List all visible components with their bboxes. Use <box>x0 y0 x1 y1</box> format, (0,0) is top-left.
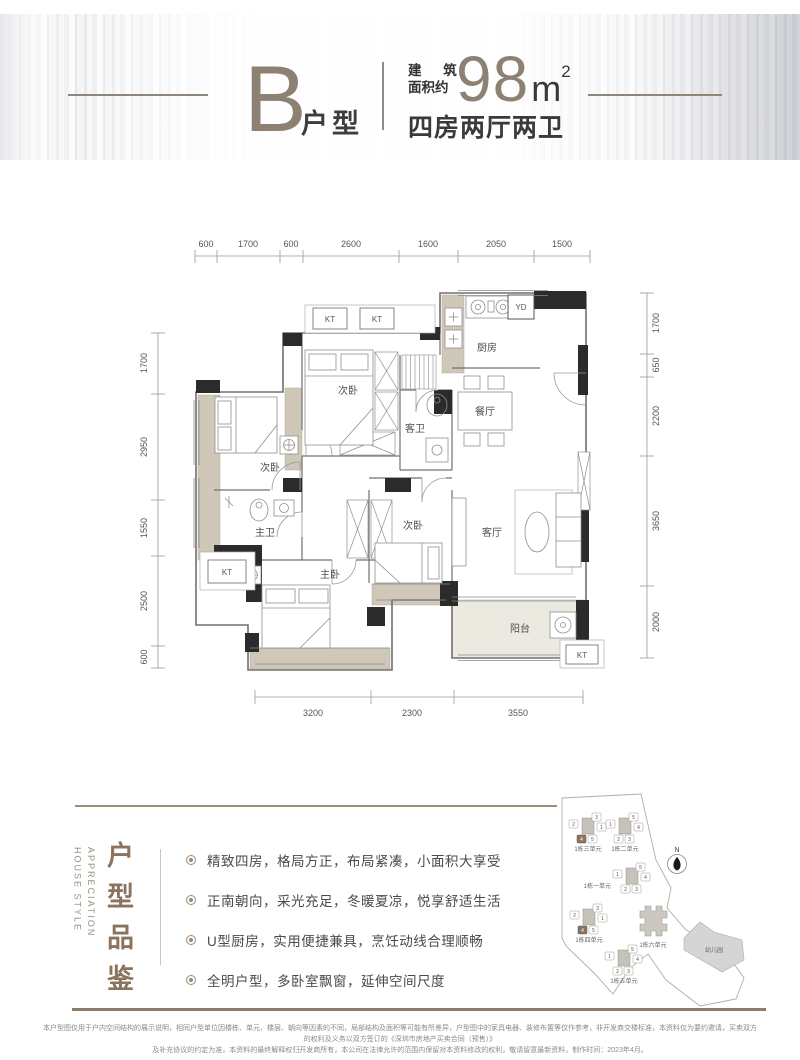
bullet-icon <box>186 895 196 905</box>
dim-top-1: 1700 <box>238 239 258 249</box>
dim-bottom-0: 3200 <box>303 708 323 718</box>
room-balcony: 阳台 <box>510 622 530 635</box>
ac-label-1: KT <box>325 315 335 324</box>
room-kitchen: 厨房 <box>477 341 497 354</box>
disclaimer-line1: 本户型图仅用于户内空间结构的展示说明，相同户型单位因楼栋、单元、楼层、朝向等因素… <box>40 1023 760 1045</box>
bullet-row: 全明户型，多卧室飘窗，延伸空间尺度 <box>186 970 586 990</box>
dim-top-0: 600 <box>198 239 213 249</box>
area-exponent: 2 <box>561 62 570 82</box>
dim-left-1: 2950 <box>140 437 149 457</box>
dim-bottom-1: 2300 <box>402 708 422 718</box>
unit-number: 3 <box>595 815 598 821</box>
bullet-icon <box>186 975 196 985</box>
layout-summary: 四房两厅两卫 <box>408 108 564 144</box>
dim-bottom-2: 3550 <box>508 708 528 718</box>
disclaimer: 本户型图仅用于户内空间结构的展示说明，相同户型单位因楼栋、单元、楼层、朝向等因素… <box>40 1023 760 1057</box>
footer-rule <box>72 1008 766 1011</box>
appreciation-title-cn: 户型品鉴 <box>99 841 138 1006</box>
unit-number: 5 <box>639 865 642 871</box>
room-bedroom-mid: 次卧 <box>403 519 423 532</box>
unit-number: 2 <box>624 887 627 893</box>
unit-number: 1 <box>609 822 612 828</box>
dim-right-1: 650 <box>651 357 661 372</box>
appreciation-title-en: HOUSE STYLE APPRECIATION <box>70 847 97 977</box>
stairwell <box>402 355 436 389</box>
unit-number: 4 <box>637 825 640 831</box>
cluster-label: 1栋一单元 <box>584 882 611 890</box>
room-living: 客厅 <box>482 526 502 539</box>
unit-number: 1 <box>600 825 603 831</box>
room-dining: 餐厅 <box>475 405 495 418</box>
unit-number: 5 <box>592 928 595 934</box>
unit-number: 2 <box>572 822 575 828</box>
unit-number: 3 <box>628 837 631 843</box>
bullet-text: 全明户型，多卧室飘窗，延伸空间尺度 <box>207 970 445 990</box>
unit-number: 5 <box>591 837 594 843</box>
dim-left-2: 1550 <box>140 518 149 538</box>
north-compass: N <box>668 847 687 874</box>
unit-number-highlighted: 4 <box>580 837 583 843</box>
unit-number: 2 <box>617 837 620 843</box>
unit-type-letter: B <box>244 52 307 146</box>
header-divider <box>382 62 384 130</box>
dim-right-4: 2000 <box>651 612 661 632</box>
dim-left-3: 2500 <box>140 591 149 611</box>
unit-number: 4 <box>636 957 639 963</box>
room-bedroom-left: 次卧 <box>260 461 280 474</box>
north-label: N <box>674 847 679 854</box>
unit-number: 5 <box>631 947 634 953</box>
unit-number: 1 <box>616 872 619 878</box>
cluster-label: 1栋三单元 <box>574 845 601 853</box>
appreciation-bullets: 精致四房，格局方正，布局紧凑，小面积大享受 正南朝向，采光充足，冬暖夏凉，悦享舒… <box>186 850 586 1010</box>
dim-top-2: 600 <box>283 239 298 249</box>
bullet-text: 正南朝向，采光充足，冬暖夏凉，悦享舒适生活 <box>207 890 501 910</box>
unit-number: 2 <box>573 913 576 919</box>
room-master-bedroom: 主卧 <box>320 568 340 581</box>
unit-number-highlighted: 4 <box>581 928 584 934</box>
bullet-text: U型厨房，实用便捷兼具，烹饪动线合理顺畅 <box>207 930 483 950</box>
disclaimer-line2: 及补充协议的约定为准，本资料的最终解释权归开发商所有，本公司在法律允许的范围内保… <box>40 1045 760 1056</box>
dim-left-0: 1700 <box>140 353 149 373</box>
area-unit: m <box>531 68 561 110</box>
unit-type-suffix: 户型 <box>301 102 363 141</box>
dim-top-4: 1600 <box>418 239 438 249</box>
dim-top-5: 2050 <box>486 239 506 249</box>
room-master-bath: 主卫 <box>255 527 275 539</box>
cluster-label: 1栋四单元 <box>575 936 602 944</box>
dim-left-4: 600 <box>140 649 149 664</box>
siteplan: 幼儿园 N 2 3 1 4 5 1栋三单元 1 5 4 2 3 1栋二单元 1 … <box>545 785 800 1010</box>
unit-number: 3 <box>627 969 630 975</box>
floorplan: 600 1700 600 2600 1600 2050 1500 1700 29… <box>140 228 665 733</box>
ac-label-2: KT <box>372 315 382 324</box>
bullet-row: 正南朝向，采光充足，冬暖夏凉，悦享舒适生活 <box>186 890 586 910</box>
appreciation-title-en-line2: APPRECIATION <box>86 847 96 937</box>
ac-label-4: KT <box>577 651 587 660</box>
appreciation-top-rule <box>75 805 557 807</box>
appreciation-divider <box>160 849 161 965</box>
dim-top-3: 2600 <box>341 239 361 249</box>
kindergarten-label: 幼儿园 <box>705 946 723 954</box>
cluster-label: 1栋五单元 <box>610 977 637 985</box>
cluster-6: 1栋六单元 <box>639 906 667 949</box>
bullet-icon <box>186 935 196 945</box>
appreciation-title-en-line1: HOUSE STYLE <box>73 847 83 932</box>
room-bedroom-top: 次卧 <box>338 384 358 397</box>
unit-number: 1 <box>608 954 611 960</box>
bullet-row: U型厨房，实用便捷兼具，烹饪动线合理顺畅 <box>186 930 586 950</box>
bullet-row: 精致四房，格局方正，布局紧凑，小面积大享受 <box>186 850 586 870</box>
dim-right-0: 1700 <box>651 313 661 333</box>
bullet-icon <box>186 855 196 865</box>
area-value: 98 <box>456 50 529 109</box>
dim-right-3: 3650 <box>651 511 661 531</box>
room-guest-bath: 客卫 <box>405 422 425 435</box>
dim-right-2: 2200 <box>651 406 661 426</box>
cluster-label: 1栋二单元 <box>611 845 638 853</box>
unit-number: 5 <box>632 815 635 821</box>
unit-number: 2 <box>616 969 619 975</box>
header-stripe-banner <box>0 14 800 160</box>
flue-label: YD <box>515 303 526 312</box>
dim-top-6: 1500 <box>552 239 572 249</box>
unit-number: 3 <box>596 906 599 912</box>
area-figure: 98 m 2 <box>456 50 571 110</box>
unit-number: 3 <box>635 887 638 893</box>
unit-number: 1 <box>601 916 604 922</box>
ac-label-3: KT <box>222 568 232 577</box>
unit-number: 4 <box>644 875 647 881</box>
cluster-label: 1栋六单元 <box>639 941 666 949</box>
bullet-text: 精致四房，格局方正，布局紧凑，小面积大享受 <box>207 850 501 870</box>
header-left-rule <box>68 94 208 96</box>
header-right-rule <box>588 94 722 96</box>
